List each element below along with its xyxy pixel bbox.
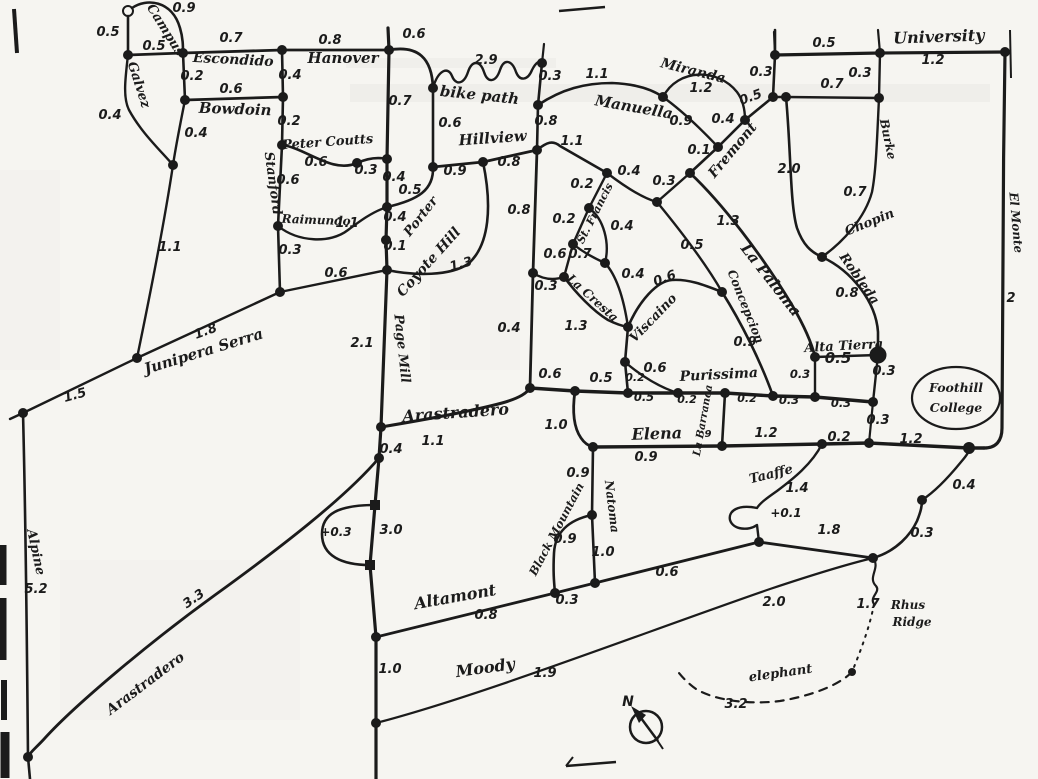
distance-label: 1.1 <box>335 216 358 231</box>
junction-node <box>529 269 538 278</box>
distance-label: 1.8 <box>817 523 840 538</box>
distance-label: 0.3 <box>354 163 377 178</box>
distance-label: 0.5 <box>96 25 119 40</box>
distance-label: 1.2 <box>899 432 922 447</box>
junction-node <box>869 554 878 563</box>
street-label: Burke <box>877 117 900 161</box>
distance-label: 0.6 <box>324 266 347 281</box>
junction-node <box>818 253 827 262</box>
distance-label: 0.4 <box>98 108 121 123</box>
foothill-college-bubble <box>912 367 1000 429</box>
distance-label: 0.5 <box>825 349 852 367</box>
pen-mark-top-left <box>14 9 17 53</box>
street-label: Hillview <box>457 127 528 150</box>
junction-node <box>755 538 764 547</box>
distance-label: 0.4 <box>610 219 633 234</box>
street-label: Chopin <box>843 206 897 239</box>
distance-label: 0.3 <box>652 174 675 189</box>
distance-label: 0.4 <box>184 126 207 141</box>
street-label: Elena <box>630 423 682 444</box>
junction-node <box>621 358 630 367</box>
junction-node <box>133 354 142 363</box>
street-label: Escondido <box>191 50 274 70</box>
distance-label: 9 <box>705 429 712 440</box>
distance-label: 2.1 <box>350 336 373 351</box>
street-label: University <box>893 25 987 47</box>
distance-label: +0.1 <box>770 506 801 520</box>
distance-label: 0.3 <box>910 526 933 541</box>
distance-label: 1.1 <box>158 240 181 255</box>
distance-label: 1.7 <box>856 597 880 612</box>
distance-label: 1.0 <box>378 662 401 677</box>
distance-label: 0.6 <box>543 247 566 262</box>
distance-label: 0.6 <box>643 361 666 376</box>
distance-label: 0.9 <box>566 466 589 481</box>
junction-node <box>769 392 778 401</box>
distance-label: 0.9 <box>172 1 195 16</box>
distance-label: 1.1 <box>560 134 583 149</box>
distance-label: 0.2 <box>180 69 203 84</box>
road-la-barranca <box>722 393 725 446</box>
street-label: Bowdoin <box>198 99 272 120</box>
distance-label: 1.2 <box>689 81 712 96</box>
junction-node <box>372 633 381 642</box>
pen-mark-top-mid <box>559 7 605 11</box>
distance-label: 0.6 <box>219 82 242 97</box>
distance-label: 1.1 <box>421 434 444 449</box>
distance-label: 0.9 <box>733 335 756 350</box>
street-label: Moody <box>453 654 517 681</box>
distance-label: 0.4 <box>952 478 975 493</box>
street-label: Galvez <box>124 60 153 111</box>
distance-label: 0.3 <box>555 593 578 608</box>
pen-mark-bottom-mid <box>566 762 616 766</box>
foothill-college-label: Foothill <box>928 380 983 395</box>
junction-node <box>865 439 874 448</box>
road-elena <box>593 443 984 448</box>
distance-label: 1.3 <box>564 319 587 334</box>
street-label: Viscaino <box>627 291 681 346</box>
junction-node <box>589 443 598 452</box>
distance-label: 0.5 <box>812 36 835 51</box>
distance-label: 1.2 <box>921 53 944 68</box>
junction-node <box>429 84 438 93</box>
distance-label: 0.7 <box>568 247 592 262</box>
street-label: Rhus <box>890 598 925 612</box>
foothill-college-label: College <box>930 400 982 415</box>
distance-label: 1.9 <box>533 666 556 681</box>
distance-label: 0.5 <box>634 390 654 404</box>
street-label: El Monte <box>1006 191 1025 254</box>
distance-label: 0.2 <box>677 393 697 406</box>
distance-label: 0.1 <box>383 239 406 254</box>
junction-node <box>603 169 612 178</box>
distance-label: 0.3 <box>831 396 851 410</box>
distance-label: 0.9 <box>553 532 576 547</box>
paper-texture <box>430 250 520 370</box>
junction-node <box>591 579 600 588</box>
junction-node <box>24 753 33 762</box>
distance-label: 0.2 <box>552 212 575 227</box>
paper-texture <box>0 170 60 370</box>
distance-label: 0.4 <box>497 321 520 336</box>
junction-node <box>124 51 133 60</box>
junction-node <box>624 389 633 398</box>
junction-node <box>385 46 394 55</box>
junction-node <box>811 393 820 402</box>
distance-label: 0.5 <box>142 39 165 54</box>
distance-label: 2.0 <box>777 162 800 177</box>
junction-node <box>918 496 927 505</box>
distance-label: 0.4 <box>621 267 644 282</box>
road-galvez-south <box>137 165 173 358</box>
distance-label: 0.3 <box>848 66 871 81</box>
distance-label: 1.1 <box>585 67 608 82</box>
distance-label: 0.7 <box>843 185 867 200</box>
junction-node <box>849 669 856 676</box>
junction-node <box>771 51 780 60</box>
distance-label: 1.4 <box>785 481 808 496</box>
distance-label: 0.6 <box>651 268 678 290</box>
distance-label: 0.5 <box>398 183 421 198</box>
distance-label: 1.5 <box>62 385 88 405</box>
junction-node <box>19 409 28 418</box>
street-label: La Cresta <box>563 271 621 325</box>
junction-node <box>571 387 580 396</box>
street-label: Hanover <box>307 49 380 67</box>
distance-label: 0.3 <box>790 367 810 381</box>
junction-square-marker <box>370 500 380 510</box>
junction-node <box>276 288 285 297</box>
junction-node <box>869 398 878 407</box>
street-label: Purissima <box>678 365 758 385</box>
distance-label: 0.3 <box>872 364 895 379</box>
distance-label: 2.9 <box>474 53 497 68</box>
distance-label: 0.9 <box>443 164 466 179</box>
edge-tick-right <box>1010 30 1011 78</box>
distance-label: 0.1 <box>687 143 710 158</box>
junction-node <box>1001 48 1010 57</box>
distance-label: 0.2 <box>625 371 645 384</box>
distance-label: 0.8 <box>835 286 858 301</box>
distance-label: 0.3 <box>779 393 799 407</box>
junction-node <box>377 423 386 432</box>
street-label: Page Mill <box>390 313 412 384</box>
junction-node <box>538 59 547 68</box>
junction-node <box>964 443 975 454</box>
distance-label: 0.8 <box>318 33 341 48</box>
road-university <box>775 52 1005 55</box>
junction-node <box>769 93 778 102</box>
street-label: Natoma <box>602 478 622 533</box>
junction-node <box>782 93 791 102</box>
distance-label: 0.8 <box>497 155 520 170</box>
junction-node <box>718 442 727 451</box>
distance-label: 2 <box>1006 291 1015 306</box>
paper-texture <box>60 560 300 720</box>
distance-label: 1.0 <box>591 545 614 560</box>
distance-label: 0.7 <box>820 77 844 92</box>
road-fremont-east <box>786 97 879 98</box>
distance-label: 0.6 <box>304 155 327 170</box>
distance-label: 0.9 <box>669 114 692 129</box>
distance-label: 2.0 <box>762 595 785 610</box>
distance-label: 0.3 <box>534 279 557 294</box>
hand-drawn-road-map: FoothillCollegeNCampusEscondidoHanoverGa… <box>0 0 1038 779</box>
distance-label: 0.6 <box>402 27 425 42</box>
junction-node <box>718 288 727 297</box>
road-stanford-south <box>278 226 280 292</box>
street-label: elephant <box>748 662 813 686</box>
compass-needle-tail <box>657 740 663 749</box>
compass-north-label: N <box>622 694 634 710</box>
junction-node <box>383 155 392 164</box>
street-label: Ridge <box>892 615 932 629</box>
distance-label: 0.2 <box>277 114 300 129</box>
junction-node <box>278 46 287 55</box>
junction-node <box>526 384 535 393</box>
road-el-monte <box>984 52 1005 448</box>
distance-label: 0.9 <box>634 450 657 465</box>
road-hanover-bend <box>389 49 433 88</box>
distance-label: 0.3 <box>278 243 301 258</box>
road-bowdoin-south <box>173 100 185 165</box>
road-fremont-south <box>786 97 822 257</box>
road-end-ring <box>123 6 133 16</box>
street-label: Black Mountain <box>526 480 587 579</box>
junction-node <box>876 49 885 58</box>
junction-node <box>383 266 392 275</box>
distance-label: 0.8 <box>474 608 497 623</box>
distance-label: 0.6 <box>438 116 461 131</box>
junction-node <box>372 719 381 728</box>
distance-label: 0.8 <box>507 203 530 218</box>
junction-node <box>714 143 723 152</box>
junction-node <box>181 96 190 105</box>
distance-label: 0.5 <box>589 371 612 386</box>
junction-node <box>721 389 730 398</box>
distance-label: 0.4 <box>383 210 406 225</box>
junction-node <box>875 94 884 103</box>
distance-label: 3.0 <box>379 523 402 538</box>
distance-label: 0.3 <box>866 413 889 428</box>
distance-label: 1.2 <box>754 426 777 441</box>
distance-label: 0.4 <box>617 164 640 179</box>
junction-node <box>429 163 438 172</box>
distance-label: 0.2 <box>827 430 850 445</box>
junction-node <box>533 146 542 155</box>
distance-label: 1.3 <box>716 214 739 229</box>
distance-label: 0.7 <box>219 31 243 46</box>
distance-label: 3.2 <box>724 697 747 712</box>
distance-label: 0.6 <box>276 173 299 188</box>
distance-label: 0.4 <box>278 68 301 83</box>
distance-label: 0.6 <box>538 367 561 382</box>
junction-node <box>818 440 827 449</box>
junction-node <box>534 101 543 110</box>
junction-node <box>686 169 695 178</box>
distance-label: 0.2 <box>737 392 757 405</box>
junction-node <box>653 198 662 207</box>
scanned-map-page: FoothillCollegeNCampusEscondidoHanoverGa… <box>0 0 1038 779</box>
street-label: Arastradero <box>400 399 510 426</box>
distance-label: 0.7 <box>388 94 412 109</box>
junction-node <box>601 259 610 268</box>
road-burke-north <box>879 53 880 98</box>
distance-label: 0.8 <box>534 114 557 129</box>
distance-label: 0.3 <box>538 69 561 84</box>
distance-label: 0.3 <box>749 65 772 80</box>
distance-label: 0.5 <box>680 238 703 253</box>
distance-label: 0.2 <box>570 177 593 192</box>
distance-label: 5.2 <box>24 582 47 597</box>
junction-square-marker <box>365 560 375 570</box>
junction-node <box>479 158 488 167</box>
distance-label: 0.6 <box>655 565 678 580</box>
distance-label: 0.4 <box>379 442 402 457</box>
junction-node <box>659 93 668 102</box>
junction-node <box>588 511 597 520</box>
junction-node <box>279 93 288 102</box>
road-elephant-dotted <box>852 604 874 672</box>
road-elena-west-link <box>574 391 593 447</box>
junction-node <box>169 161 178 170</box>
distance-label: 1.0 <box>544 418 567 433</box>
distance-label: +0.3 <box>320 525 351 539</box>
distance-label: 0.4 <box>711 112 734 127</box>
street-label: Peter Coutts <box>281 132 375 153</box>
